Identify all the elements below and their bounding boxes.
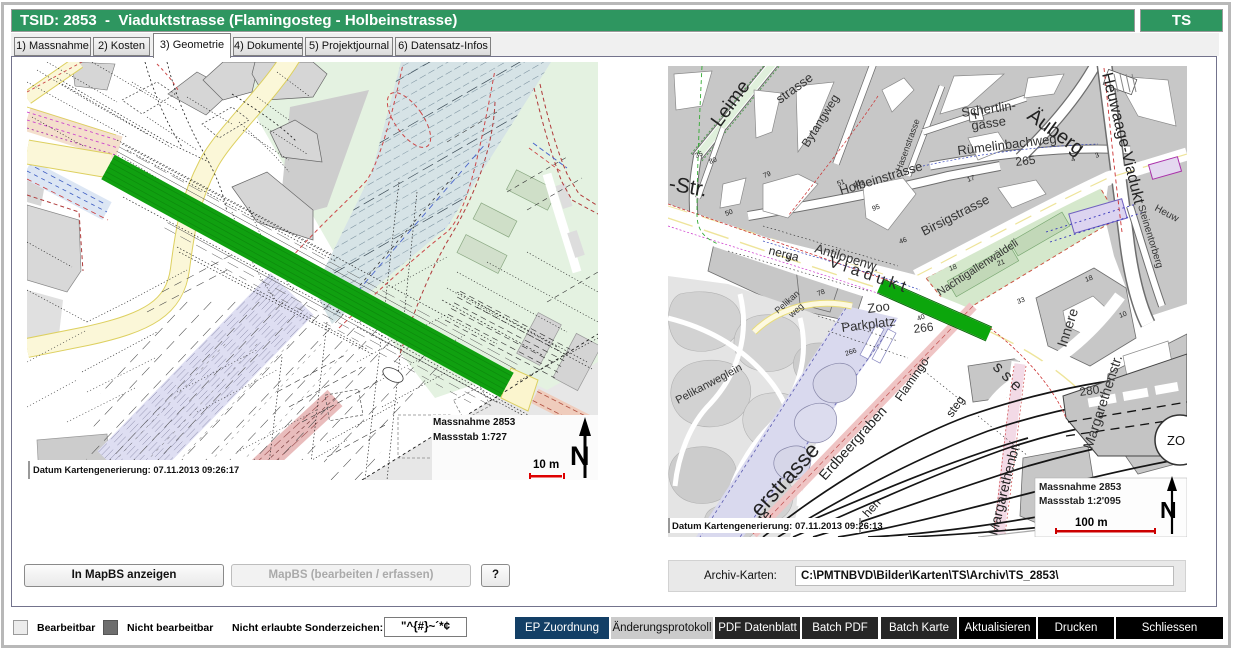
svg-text:Massnahme 2853: Massnahme 2853 xyxy=(433,417,516,428)
svg-text:Datum Kartengenerierung: 07.11: Datum Kartengenerierung: 07.11.2013 09:2… xyxy=(672,521,883,532)
svg-text:280: 280 xyxy=(1078,382,1100,399)
svg-text:N: N xyxy=(570,441,590,471)
svg-text:266: 266 xyxy=(913,320,935,336)
svg-text:Datum Kartengenerierung: 07.11: Datum Kartengenerierung: 07.11.2013 09:2… xyxy=(33,465,239,475)
svg-text:Zoo: Zoo xyxy=(867,298,891,316)
svg-text:10 m: 10 m xyxy=(533,459,559,471)
svg-text:Massnahme 2853: Massnahme 2853 xyxy=(1039,482,1122,493)
svg-text:265: 265 xyxy=(1015,153,1037,169)
svg-text:Massstab 1:2'095: Massstab 1:2'095 xyxy=(1039,496,1121,507)
svg-text:100 m: 100 m xyxy=(1075,517,1108,529)
svg-text:ZO: ZO xyxy=(1167,433,1185,448)
svg-text:N: N xyxy=(1160,497,1177,523)
svg-text:Massstab 1:727: Massstab 1:727 xyxy=(433,432,507,443)
